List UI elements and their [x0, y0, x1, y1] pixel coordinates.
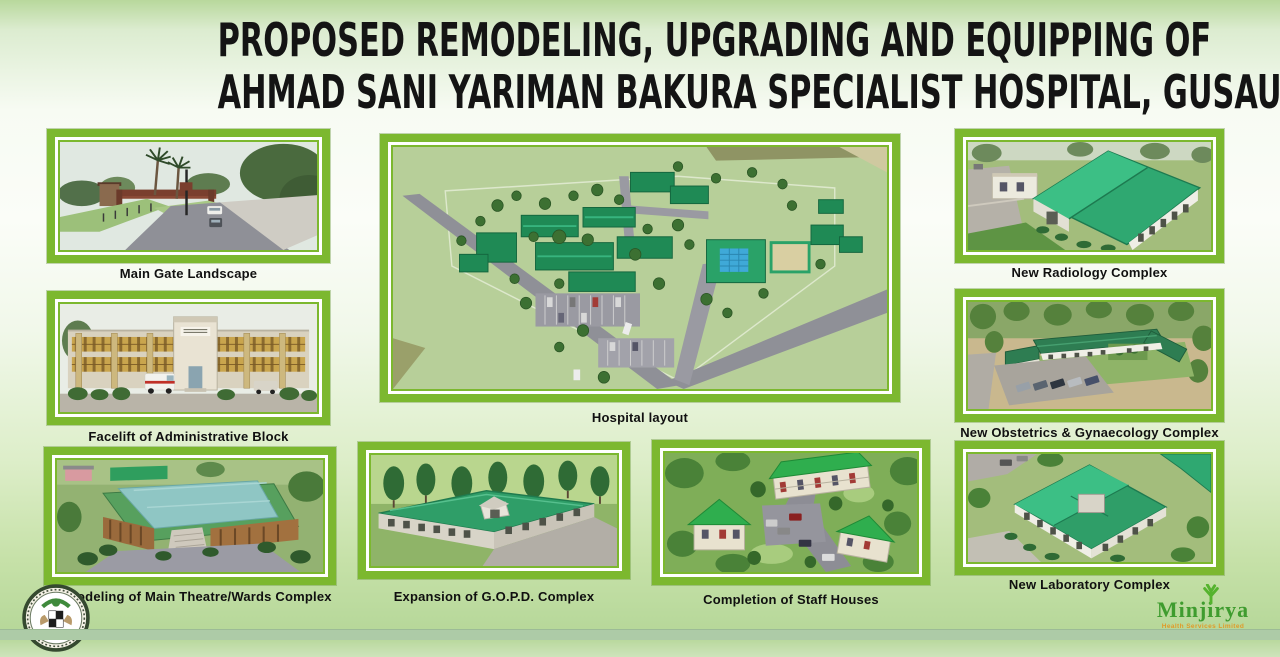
panel-main-gate [47, 129, 330, 263]
panel-obstetrics [955, 289, 1224, 422]
admin-block-frame [55, 299, 322, 417]
staff-houses-frame [660, 448, 922, 577]
laboratory-frame [963, 449, 1216, 567]
staff-houses-rendering [665, 453, 917, 572]
panel-gopd [358, 442, 630, 579]
main-gate-rendering [60, 142, 317, 250]
theatre-wards-rendering [57, 460, 323, 572]
caption-radiology: New Radiology Complex [955, 265, 1224, 280]
gopd-frame [366, 450, 622, 571]
panel-staff-houses [652, 440, 930, 585]
title-line2: AHMAD SANI YARIMAN BAKURA SPECIALIST HOS… [218, 66, 1063, 118]
government-seal-icon [22, 584, 90, 652]
radiology-frame [963, 137, 1216, 255]
hospital-layout-rendering [393, 147, 887, 389]
obstetrics-frame [963, 297, 1216, 414]
panel-hospital-layout [380, 134, 900, 402]
panel-laboratory [955, 441, 1224, 575]
caption-gopd: Expansion of G.O.P.D. Complex [358, 589, 630, 604]
panel-radiology [955, 129, 1224, 263]
admin-block-rendering [60, 304, 317, 412]
poster-title: PROPOSED REMODELING, UPGRADING AND EQUIP… [0, 14, 1280, 118]
caption-obstetrics: New Obstetrics & Gynaecology Complex [955, 425, 1224, 440]
poster: PROPOSED REMODELING, UPGRADING AND EQUIP… [0, 0, 1280, 639]
gopd-rendering [371, 455, 617, 566]
caption-main-gate: Main Gate Landscape [47, 266, 330, 281]
panel-admin-block [47, 291, 330, 425]
caption-hospital-layout: Hospital layout [380, 410, 900, 425]
minjirya-tree-icon [1200, 584, 1222, 604]
main-gate-frame [55, 137, 322, 255]
bottom-edge-band [0, 629, 1280, 640]
caption-staff-houses: Completion of Staff Houses [652, 592, 930, 607]
government-seal-logo [22, 584, 90, 652]
radiology-rendering [968, 142, 1211, 250]
laboratory-rendering [968, 454, 1211, 562]
caption-admin-block: Facelift of Administrative Block [47, 429, 330, 444]
title-line1: PROPOSED REMODELING, UPGRADING AND EQUIP… [218, 14, 1063, 66]
theatre-wards-frame [52, 455, 328, 577]
obstetrics-rendering [968, 302, 1211, 409]
hospital-layout-frame [388, 142, 892, 394]
panel-theatre-wards [44, 447, 336, 585]
